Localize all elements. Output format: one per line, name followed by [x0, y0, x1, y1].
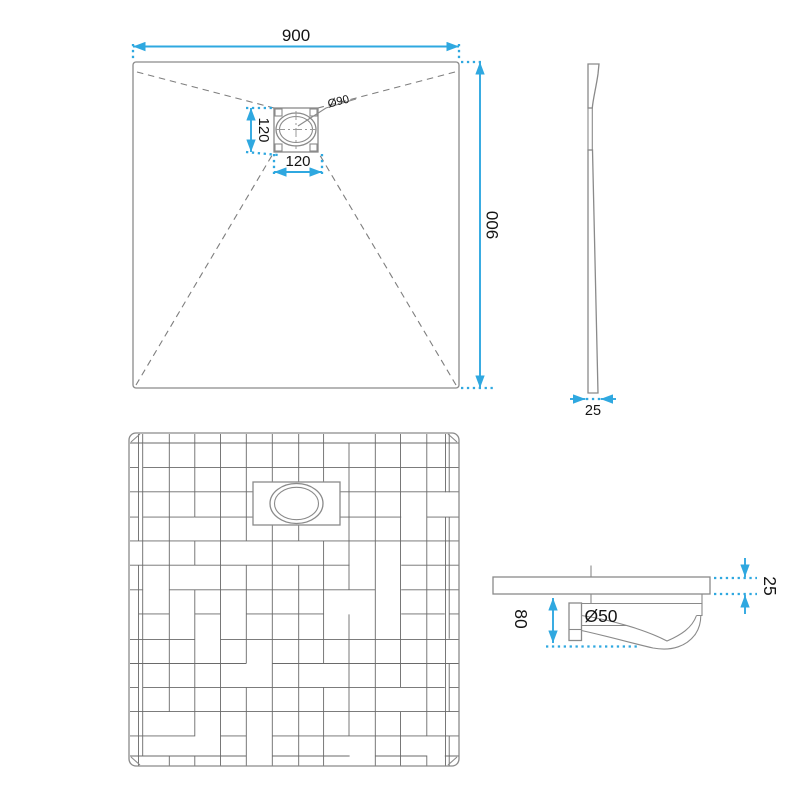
texture-view: [129, 433, 459, 766]
trap-depth-label: 80: [511, 609, 531, 629]
trap-recess: [582, 594, 703, 604]
drain-height-label: 120: [255, 117, 272, 142]
side-profile-view: 25: [570, 64, 616, 419]
drain-cover-plate: [253, 482, 340, 525]
technical-drawing-page: Ø90 900 900 120 120: [0, 0, 800, 800]
profile-bottom-section: [588, 150, 598, 393]
plan-width-label: 900: [282, 26, 310, 45]
shower-tray-drawing: Ø90 900 900 120 120: [0, 0, 800, 800]
drain-texture: [253, 482, 340, 525]
profile-drain-gap: [588, 108, 592, 150]
section-detail-view: Ø50 80 25: [493, 558, 780, 649]
profile-top-section: [588, 64, 599, 108]
outlet-diameter-label: Ø50: [584, 606, 617, 626]
drain-width-label: 120: [285, 153, 310, 170]
dim-plan-height: 900: [461, 62, 502, 388]
dim-plan-width: 900: [133, 26, 459, 59]
tray-slab: [493, 577, 710, 594]
side-thickness-label: 25: [585, 403, 601, 419]
plan-view: Ø90 900 900 120 120: [133, 26, 502, 388]
edge-thickness-label: 25: [760, 576, 780, 595]
dim-edge-thickness: 25: [714, 558, 780, 614]
outlet-flange: [569, 603, 582, 641]
plan-height-label: 900: [483, 211, 502, 239]
dim-side-thickness: 25: [570, 399, 616, 419]
drain-plan: [274, 108, 318, 152]
drain-trap: Ø50: [569, 594, 702, 649]
trap-step: [697, 604, 703, 616]
